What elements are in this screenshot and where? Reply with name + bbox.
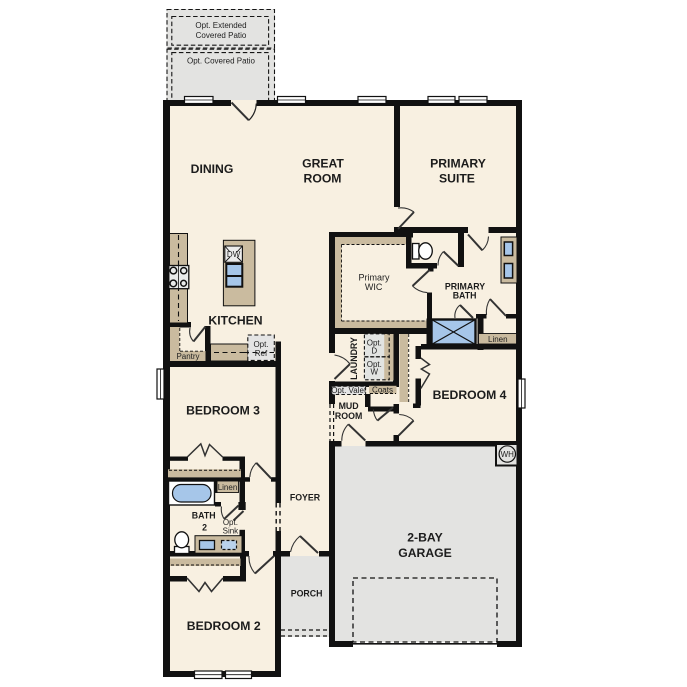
svg-text:Sink: Sink (223, 527, 240, 536)
svg-text:BEDROOM 2: BEDROOM 2 (187, 619, 261, 633)
svg-text:WIC: WIC (365, 282, 383, 292)
svg-text:WH: WH (501, 450, 515, 459)
svg-text:BATH: BATH (453, 291, 477, 301)
svg-text:D: D (371, 347, 377, 356)
svg-text:SUITE: SUITE (439, 171, 475, 185)
svg-text:GARAGE: GARAGE (398, 546, 452, 560)
svg-text:GREAT: GREAT (302, 156, 344, 170)
svg-text:BATH: BATH (192, 510, 216, 520)
svg-text:BEDROOM 4: BEDROOM 4 (433, 388, 507, 402)
svg-text:Primary: Primary (359, 273, 390, 283)
svg-text:Coats: Coats (372, 386, 393, 395)
svg-text:Opt.: Opt. (223, 518, 238, 527)
svg-text:Linen: Linen (488, 335, 508, 344)
svg-text:MUD: MUD (339, 401, 359, 411)
svg-text:W: W (371, 368, 379, 377)
svg-text:ROOM: ROOM (304, 171, 342, 185)
svg-text:DINING: DINING (191, 162, 234, 176)
svg-text:Ref: Ref (255, 349, 268, 358)
svg-text:DW: DW (227, 250, 241, 259)
svg-text:Opt. Extended: Opt. Extended (195, 21, 246, 30)
svg-text:Linen: Linen (218, 483, 238, 492)
svg-text:BEDROOM 3: BEDROOM 3 (186, 404, 260, 418)
svg-text:FOYER: FOYER (290, 492, 321, 502)
svg-text:2: 2 (202, 522, 207, 532)
svg-text:KITCHEN: KITCHEN (208, 313, 262, 327)
svg-text:2-BAY: 2-BAY (407, 530, 442, 544)
svg-text:Opt. Covered Patio: Opt. Covered Patio (187, 57, 256, 66)
svg-text:PORCH: PORCH (291, 589, 323, 599)
svg-text:Opt.: Opt. (253, 340, 268, 349)
svg-text:ROOM: ROOM (335, 411, 362, 421)
svg-text:Covered Patio: Covered Patio (196, 31, 247, 40)
svg-text:Opt. Valet: Opt. Valet (331, 386, 367, 395)
svg-text:LAUNDRY: LAUNDRY (349, 337, 359, 380)
svg-text:PRIMARY: PRIMARY (430, 156, 486, 170)
svg-text:Pantry: Pantry (176, 352, 199, 361)
